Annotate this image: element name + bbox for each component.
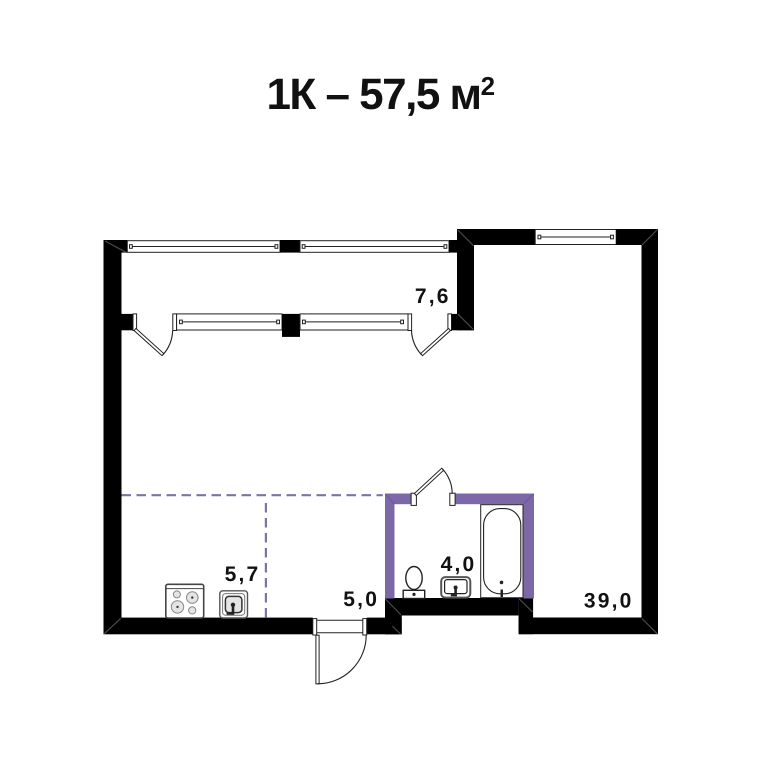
svg-text:4,0: 4,0 — [441, 553, 477, 576]
svg-text:39,0: 39,0 — [584, 589, 634, 612]
svg-text:5,0: 5,0 — [343, 588, 379, 611]
svg-text:5,7: 5,7 — [225, 563, 261, 586]
svg-text:7,6: 7,6 — [415, 285, 451, 308]
svg-text:1К – 57,5 м2: 1К – 57,5 м2 — [266, 70, 494, 119]
